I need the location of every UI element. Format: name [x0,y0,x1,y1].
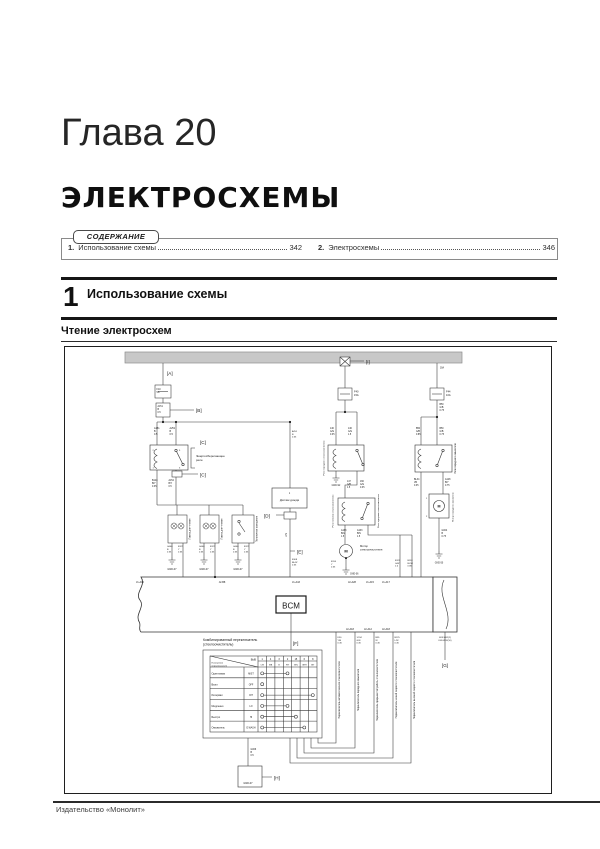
toc-item-page: 346 [542,243,555,252]
diagram-label: J1-A43 [292,581,301,584]
toc-item: 1. Использование схемы 342 [68,243,302,252]
toc-item-page: 342 [289,243,302,252]
diagram-label: Комбинированный переключатель(стеклоочис… [203,638,257,646]
diagram-label: Реле задержки стеклоочистителя [378,493,380,528]
diagram-label: J1-A15 [366,581,375,584]
lamp-symbols [168,515,254,543]
diagram-label: G006B0.5 [251,749,257,757]
fuse-symbols [155,385,444,400]
connector-boxes [156,357,350,519]
diagram-label: [D] [264,514,270,519]
diagram-label: B118BL/W0.85 [408,560,414,568]
wiring-diagram: [A][B][C][C][D][E][F][G][H][I]F105AA151B… [64,346,552,794]
diagram-label: [B] [196,408,202,413]
diagram-label: [A] [167,371,173,376]
diagram-label: Медленно [212,705,225,708]
diagram-label: HI [250,717,253,719]
diagram-label: Реле питания стеклоочистителя [333,494,335,527]
section-rule-bottom [61,317,557,320]
diagram-label: GND-07 [243,782,253,785]
diagram-label: K30Y/B0.35 [338,637,343,645]
contents-tab: СОДЕРЖАНИЕ [73,230,159,244]
diagram-label: 30A [440,367,445,370]
diagram-label: B35W0.35 [376,637,381,645]
diagram-label: A251B0.5 [170,427,176,436]
diagram-label: J2-A28 [348,581,357,584]
diagram-label: J2-A12 [364,628,373,631]
toc-dot-leader [158,249,287,250]
diagram-label: 166G/G0.35 [360,481,365,489]
diagram-label: F4015A [354,390,359,397]
diagram-label: INT [249,695,253,697]
diagram-label: B108BL/W0.35 [292,559,298,567]
toc-dot-leader [381,249,540,250]
diagram-label: LO [249,706,252,708]
subsection-rule [61,341,557,342]
contents-row: 1. Использование схемы 342 2. Электросхе… [68,243,555,252]
diagram-label: 2 [426,516,428,518]
diagram-label: Реле переднего омывателя [454,443,457,474]
toc-item: 2. Электросхемы 346 [318,243,555,252]
diagram-label: B114Y0.35 [331,561,337,569]
diagram-label: Потолочное освещение [256,515,259,542]
diagram-label: Переключатель переднего омывателя [357,668,360,711]
toc-item-number: 1. [68,243,74,252]
diagram-label: A152B/Y0.5 [169,479,175,488]
diagram-label: B50G/B0.85 [416,428,421,436]
diagram-label: [C] [200,473,206,478]
power-bus-bar [125,352,462,363]
toc-item-number: 2. [318,243,324,252]
diagram-label: E.WASH [247,727,256,730]
page-title: ЭЛЕКТРОСХЕМЫ [61,181,340,214]
diagram-label: B50G/B0.75 [440,404,445,412]
diagram-label: A251B0.35 [292,430,298,439]
diagram-label: ВЫВ [251,659,257,662]
toc-item-label: Использование схемы [78,243,156,252]
diagram-label: A128B/Y0.75 [445,478,451,487]
diagram-label: A163B/G1.5 [341,529,347,538]
section-rule-top [61,277,557,280]
diagram-label: Переключатель низкой скорости стеклоочис… [395,661,398,718]
diagram-label: Переключатель высокой скорости стеклоочи… [413,660,416,719]
diagram-label: [C] [200,440,206,445]
diagram-label: B125L/W0.35 [395,637,401,645]
diagram-label: GND-S2 [332,485,341,487]
diagram-label: J1-A17 [382,581,391,584]
diagram-label: Переключатель автоматического стеклоочис… [338,661,341,719]
toc-item-label: Электросхемы [328,243,379,252]
diagram-label: K09-W02(2)K09-W02(10) [438,637,451,642]
diagram-label: [F] [293,641,298,646]
diagram-label: B50G/B0.75 [440,428,445,436]
diagram-label: J2-A18 [346,628,355,631]
diagram-label: 146G/G0.35 [330,428,335,436]
diagram-label: GND-50 [435,563,444,565]
diagram-label: GND-07 [167,568,177,571]
diagram-label: BCM [282,602,300,611]
diagram-label: Один взмах [212,673,226,676]
diagram-label: [I] [366,360,370,365]
footer-publisher: Издательство «Монолит» [56,805,145,814]
diagram-label: Мотор переднего омывателя [453,492,455,522]
diagram-label: Лампа для чтения [221,518,224,540]
diagram-label: J2-B8 [219,581,226,584]
diagram-label: GND-06 [350,574,359,576]
diagram-label: MIST [248,674,254,676]
diagram-label: GRH [302,665,307,667]
diagram-label: Быстро [212,716,221,719]
diagram-label: BL34VR0.35 [414,479,420,487]
diagram-label: Выкл [212,683,219,686]
chapter-heading: Глава 20 [61,112,216,155]
diagram-label: [H] [274,776,280,781]
diagram-label: GND-07 [199,568,209,571]
diagram-label: Реле переднего стеклоочистителя [324,440,326,476]
diagram-label: Переключатель прерывистой работы стеклоо… [376,658,379,721]
diagram-label: 147G/B1.5 [347,481,352,489]
diagram-label: G004B0.75 [442,530,448,538]
diagram-label: Интервал [212,694,224,697]
diagram-label: GND-07 [233,568,243,571]
diagram-label: Датчик дождя [280,498,300,502]
page: { "page": { "chapter": "Глава 20", "titl… [0,0,600,849]
diagram-label: F4410A [446,390,451,397]
diagram-label: J2-A18 [382,628,391,631]
diagram-label: [E] [297,550,303,555]
diagram-label: Энергосберегающеереле [196,454,225,462]
diagram-label: CW [261,665,264,667]
section-number: 1 [63,283,79,311]
diagram-label: [G] [442,663,448,668]
diagram-label: Моторстеклоочистителя [360,544,383,551]
diagram-label: 146G/G1.5 [348,428,353,436]
section-title: Использование схемы [87,287,227,301]
diagram-label: 1 [426,498,428,500]
diagram-label: OFF [249,684,254,686]
diagram-label: Омыватель [212,727,226,730]
subsection-title: Чтение электросхем [61,325,172,337]
footer-rule [53,801,600,803]
diagram-label: M [438,505,441,509]
diagram-label: J1-A02 [136,581,145,584]
diagram-label: LIN [285,533,288,537]
diagram-label: 1C34G/N0.35 [357,637,363,645]
diagram-label: A163B/N1.5 [357,529,363,538]
diagram-label: Лампа для чтения [189,518,192,540]
